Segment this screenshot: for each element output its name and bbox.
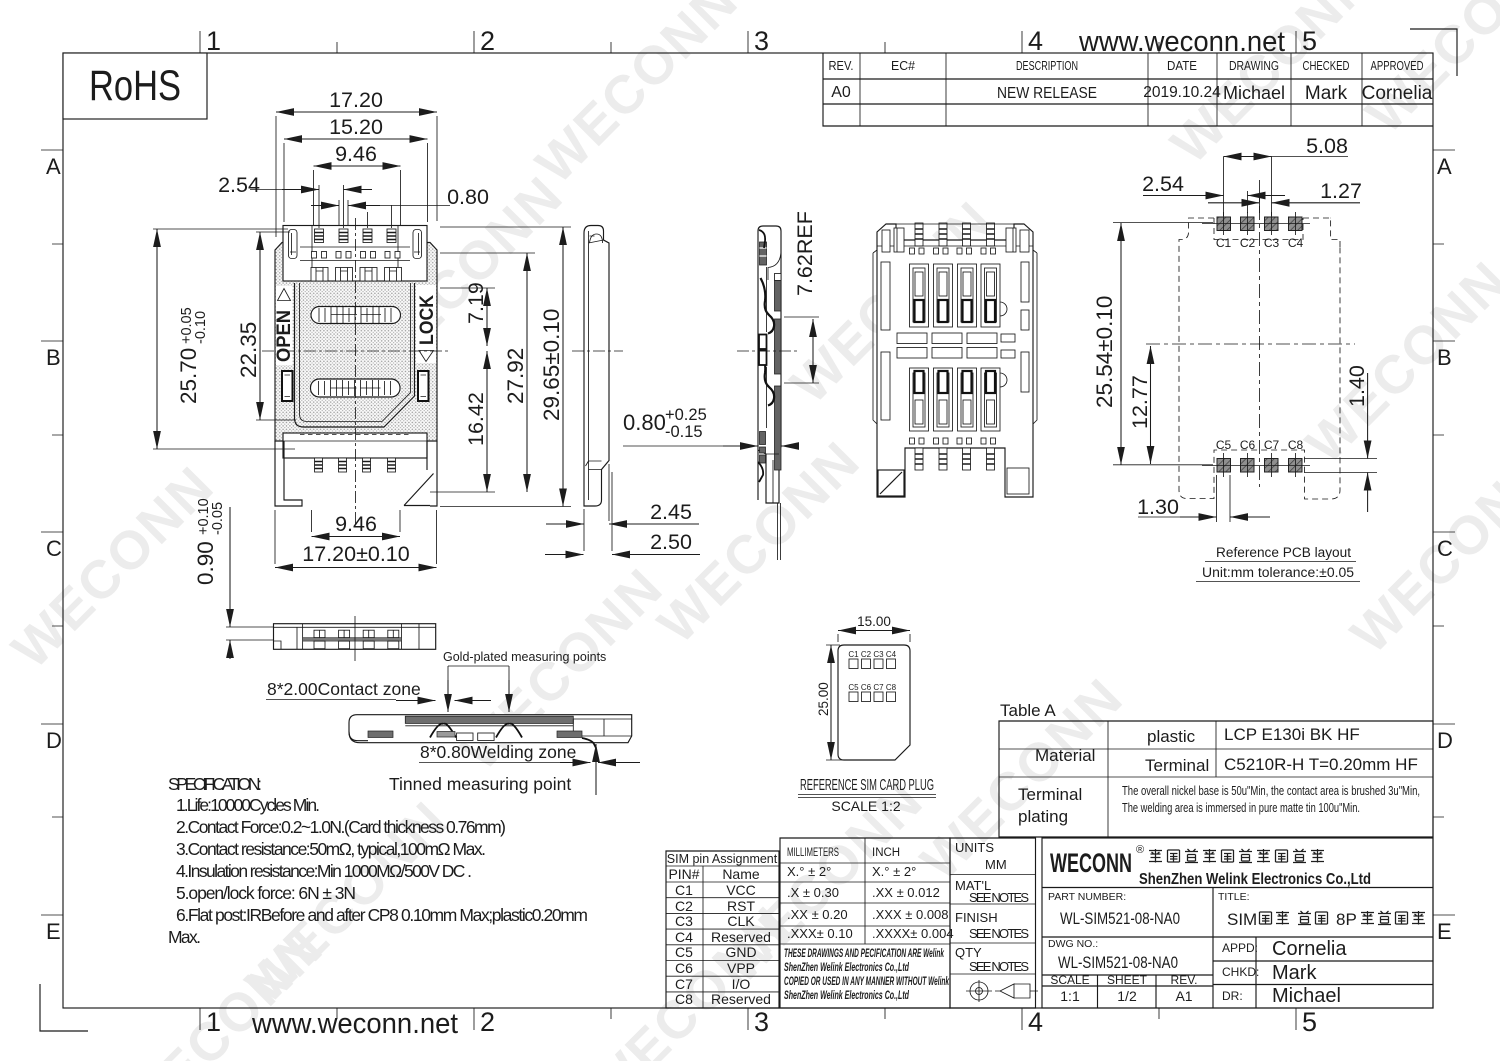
svg-text:C2: C2 — [675, 898, 693, 914]
svg-text:Mark: Mark — [1305, 83, 1348, 104]
svg-text:C6: C6 — [861, 683, 872, 692]
svg-text:C2: C2 — [1240, 236, 1256, 250]
svg-text:C5: C5 — [675, 944, 693, 960]
svg-text:Terminal: Terminal — [1145, 756, 1209, 775]
svg-text:WL-SIM521-08-NA0: WL-SIM521-08-NA0 — [1060, 910, 1180, 928]
svg-text:2: 2 — [480, 26, 495, 56]
svg-text:DR:: DR: — [1222, 989, 1243, 1003]
svg-text:1: 1 — [206, 1007, 221, 1037]
svg-text:The welding area is immersed i: The welding area is immersed in pure mat… — [1122, 801, 1360, 815]
svg-text:VCC: VCC — [726, 882, 756, 898]
svg-text:SEE NOTES: SEE NOTES — [969, 890, 1029, 905]
svg-text:C1: C1 — [848, 650, 859, 659]
svg-text:5.08: 5.08 — [1306, 134, 1348, 158]
svg-text:C6: C6 — [675, 960, 693, 976]
svg-text:SHEET: SHEET — [1107, 973, 1148, 987]
svg-text:2.50: 2.50 — [650, 530, 692, 554]
svg-text:C: C — [1437, 536, 1453, 561]
svg-text:WECONN: WECONN — [1050, 848, 1132, 878]
svg-text:C3: C3 — [873, 650, 884, 659]
svg-text:LOCK: LOCK — [417, 295, 438, 345]
svg-text:EC#: EC# — [891, 59, 915, 73]
svg-text:1.Life:10000Cycles Min.: 1.Life:10000Cycles Min. — [176, 795, 320, 815]
svg-text:5: 5 — [1302, 1007, 1317, 1037]
svg-text:DRAWING: DRAWING — [1229, 59, 1279, 73]
svg-text:SEE NOTES: SEE NOTES — [969, 926, 1029, 941]
svg-text:3: 3 — [754, 26, 769, 56]
svg-text:D: D — [1437, 728, 1453, 753]
svg-text:Max.: Max. — [168, 927, 201, 947]
svg-text:.X ± 0.30: .X ± 0.30 — [787, 885, 839, 900]
svg-text:INCH: INCH — [872, 847, 900, 859]
svg-text:www.weconn.net: www.weconn.net — [1078, 26, 1285, 58]
svg-text:.XX ± 0.012: .XX ± 0.012 — [872, 885, 940, 900]
svg-text:OPEN: OPEN — [274, 310, 295, 362]
svg-text:22.35: 22.35 — [236, 322, 261, 378]
svg-text:DESCRIPTION: DESCRIPTION — [1016, 59, 1078, 73]
svg-text:CLK: CLK — [727, 913, 755, 929]
svg-text:9.46: 9.46 — [335, 142, 377, 166]
svg-text:6.Flat post:IRBefore and after: 6.Flat post:IRBefore and after CP8 0.10m… — [176, 905, 588, 925]
svg-text:2.Contact Force:0.2~1.0N.(Card: 2.Contact Force:0.2~1.0N.(Card thickness… — [176, 817, 506, 837]
svg-text:REFERENCE SIM CARD PLUG: REFERENCE SIM CARD PLUG — [800, 777, 934, 794]
svg-text:PIN#: PIN# — [668, 866, 699, 882]
svg-text:C5: C5 — [1216, 438, 1232, 452]
svg-text:A: A — [46, 154, 61, 179]
svg-text:NEW RELEASE: NEW RELEASE — [997, 85, 1097, 102]
svg-text:SIM: SIM — [1227, 910, 1257, 929]
svg-text:CHECKED: CHECKED — [1303, 59, 1350, 73]
svg-text:Reserved: Reserved — [711, 991, 771, 1007]
svg-text:E: E — [1437, 919, 1452, 944]
svg-text:WECONN: WECONN — [525, 0, 750, 195]
svg-text:7.62REF: 7.62REF — [793, 211, 817, 296]
svg-text:25.54±0.10: 25.54±0.10 — [1092, 296, 1117, 408]
svg-text:-0.05: -0.05 — [210, 502, 226, 535]
svg-text:QTY: QTY — [955, 945, 982, 960]
svg-text:ShenZhen Welink Electronics Co: ShenZhen Welink Electronics Co.,Ltd — [784, 962, 910, 974]
svg-text:C8: C8 — [675, 991, 693, 1007]
svg-text:17.20: 17.20 — [329, 88, 383, 112]
svg-text:3: 3 — [754, 1007, 769, 1037]
svg-text:15.20: 15.20 — [329, 115, 383, 139]
svg-text:C7: C7 — [675, 976, 693, 992]
svg-text:COPIED OR USED IN ANY MANNER W: COPIED OR USED IN ANY MANNER WITHOUT Wel… — [784, 976, 949, 988]
svg-text:LCP E130i BK HF: LCP E130i BK HF — [1224, 725, 1360, 744]
svg-text:www.weconn.net: www.weconn.net — [251, 1008, 458, 1040]
svg-text:UNITS: UNITS — [955, 840, 994, 855]
svg-text:17.20±0.10: 17.20±0.10 — [302, 542, 409, 566]
svg-text:4: 4 — [1028, 26, 1043, 56]
svg-text:8*2.00Contact zone: 8*2.00Contact zone — [267, 679, 421, 699]
svg-text:2019.10.24: 2019.10.24 — [1143, 84, 1221, 101]
svg-text:RoHS: RoHS — [89, 62, 181, 110]
svg-text:X.° ± 2°: X.° ± 2° — [787, 864, 831, 879]
svg-text:9.46: 9.46 — [335, 512, 377, 536]
svg-text:GND: GND — [725, 944, 756, 960]
svg-text:SEE NOTES: SEE NOTES — [969, 959, 1029, 974]
svg-text:2: 2 — [480, 1007, 495, 1037]
svg-text:A: A — [1437, 154, 1452, 179]
svg-text:C2: C2 — [861, 650, 872, 659]
svg-text:C6: C6 — [1240, 438, 1256, 452]
svg-text:Table A: Table A — [1000, 701, 1056, 720]
svg-text:SCALE: SCALE — [1050, 973, 1089, 987]
svg-text:ShenZhen Welink Electronics Co: ShenZhen Welink Electronics Co.,Ltd — [1139, 871, 1371, 888]
svg-text:Mark: Mark — [1272, 962, 1317, 984]
svg-text:8*0.80Welding zone: 8*0.80Welding zone — [420, 742, 576, 762]
svg-text:15.00: 15.00 — [857, 614, 891, 629]
svg-text:X.° ± 2°: X.° ± 2° — [872, 864, 916, 879]
svg-text:0.90: 0.90 — [193, 541, 218, 585]
svg-text:1/2: 1/2 — [1117, 988, 1137, 1004]
svg-text:C4: C4 — [1288, 236, 1304, 250]
svg-text:3.Contact resistance:50mΩ, typ: 3.Contact resistance:50mΩ, typical,100mΩ… — [176, 839, 486, 859]
svg-text:12.77: 12.77 — [1128, 375, 1152, 429]
svg-text:The overall nickel base is 50u: The overall nickel base is 50u"Min, the … — [1122, 784, 1420, 798]
svg-text:.XXX± 0.10: .XXX± 0.10 — [787, 926, 853, 941]
svg-text:5: 5 — [1302, 26, 1317, 56]
svg-text:FINISH: FINISH — [955, 910, 998, 925]
svg-text:4: 4 — [1028, 1007, 1043, 1037]
svg-text:C1: C1 — [1216, 236, 1232, 250]
svg-text:C5210R-H T=0.20mm HF: C5210R-H T=0.20mm HF — [1224, 755, 1418, 774]
svg-text:C8: C8 — [886, 683, 897, 692]
svg-text:TITLE:: TITLE: — [1218, 891, 1250, 903]
svg-text:REV.: REV. — [1171, 973, 1198, 987]
svg-text:VPP: VPP — [727, 960, 755, 976]
svg-text:1: 1 — [206, 26, 221, 56]
svg-text:DWG NO.:: DWG NO.: — [1048, 938, 1098, 950]
svg-text:PART NUMBER:: PART NUMBER: — [1048, 891, 1126, 903]
svg-text:SIM pin Assignment: SIM pin Assignment — [667, 852, 778, 866]
svg-text:Reference PCB layout: Reference PCB layout — [1216, 545, 1351, 560]
svg-text:C4: C4 — [886, 650, 897, 659]
svg-text:WECONN: WECONN — [1, 455, 226, 680]
svg-text:0.80: 0.80 — [447, 185, 489, 209]
svg-text:Cornelia: Cornelia — [1362, 83, 1433, 104]
svg-text:WECONN: WECONN — [1295, 250, 1500, 475]
svg-text:SCALE 1:2: SCALE 1:2 — [831, 798, 900, 814]
svg-text:®: ® — [1136, 844, 1144, 856]
svg-text:1:1: 1:1 — [1060, 988, 1080, 1004]
svg-text:C1: C1 — [675, 882, 693, 898]
svg-text:C3: C3 — [675, 913, 693, 929]
svg-text:B: B — [1437, 345, 1452, 370]
svg-text:Tinned measuring point: Tinned measuring point — [389, 774, 571, 794]
svg-text:+0.25: +0.25 — [665, 406, 707, 424]
svg-text:B: B — [46, 345, 61, 370]
svg-text:Terminal: Terminal — [1018, 785, 1082, 804]
svg-text:29.65±0.10: 29.65±0.10 — [539, 309, 564, 421]
svg-text:.XXXX± 0.004: .XXXX± 0.004 — [872, 926, 954, 941]
svg-text:RST: RST — [727, 898, 755, 914]
svg-text:16.42: 16.42 — [464, 392, 488, 446]
svg-text:C4: C4 — [675, 929, 693, 945]
svg-text:MM: MM — [985, 857, 1007, 872]
svg-text:4.Insulation resistance:Min 10: 4.Insulation resistance:Min 1000MΩ/500V … — [176, 861, 472, 881]
svg-text:Cornelia: Cornelia — [1272, 938, 1347, 960]
svg-text:D: D — [46, 728, 62, 753]
svg-text:MILLIMETERS: MILLIMETERS — [787, 847, 839, 859]
svg-text:27.92: 27.92 — [503, 348, 528, 404]
svg-text:Reserved: Reserved — [711, 929, 771, 945]
svg-text:8P: 8P — [1336, 910, 1357, 929]
svg-text:C: C — [46, 536, 62, 561]
svg-text:Michael: Michael — [1272, 985, 1341, 1007]
svg-text:plating: plating — [1018, 807, 1068, 826]
svg-text:Unit:mm tolerance:±0.05: Unit:mm tolerance:±0.05 — [1202, 565, 1354, 580]
svg-text:C7: C7 — [1264, 438, 1280, 452]
svg-text:APPD:: APPD: — [1222, 941, 1258, 955]
svg-text:WECONN: WECONN — [1340, 440, 1500, 665]
svg-text:Michael: Michael — [1223, 83, 1285, 103]
svg-text:APPROVED: APPROVED — [1371, 59, 1424, 73]
svg-text:C5: C5 — [848, 683, 859, 692]
svg-text:25.00: 25.00 — [816, 682, 831, 716]
svg-text:25.70: 25.70 — [176, 348, 201, 404]
svg-text:Gold-plated measuring points: Gold-plated measuring points — [443, 650, 606, 664]
svg-text:Name: Name — [722, 866, 760, 882]
svg-text:2.54: 2.54 — [218, 173, 260, 197]
svg-text:1.40: 1.40 — [1345, 365, 1369, 407]
svg-text:plastic: plastic — [1147, 727, 1196, 746]
svg-text:2.45: 2.45 — [650, 500, 692, 524]
svg-text:5.open/lock force: 6N ± 3N: 5.open/lock force: 6N ± 3N — [176, 883, 356, 903]
svg-text:Material: Material — [1035, 746, 1095, 765]
svg-text:I/O: I/O — [732, 976, 751, 992]
svg-text:1.27: 1.27 — [1320, 179, 1362, 203]
svg-text:E: E — [46, 919, 61, 944]
svg-text:2.54: 2.54 — [1142, 172, 1184, 196]
svg-text:CHKD:: CHKD: — [1222, 965, 1259, 979]
svg-text:THESE DRAWINGS AND PECIFICATIO: THESE DRAWINGS AND PECIFICATION ARE Weli… — [784, 948, 944, 960]
svg-text:-0.10: -0.10 — [193, 311, 209, 344]
svg-text:A0: A0 — [831, 84, 851, 101]
svg-text:C8: C8 — [1288, 438, 1304, 452]
svg-text:REV.: REV. — [829, 59, 854, 73]
svg-text:A1: A1 — [1175, 988, 1192, 1004]
svg-text:-0.15: -0.15 — [665, 423, 703, 441]
svg-text:1.30: 1.30 — [1137, 495, 1179, 519]
svg-text:.XXX ± 0.008: .XXX ± 0.008 — [872, 907, 949, 922]
svg-text:0.80: 0.80 — [623, 410, 666, 435]
svg-text:C3: C3 — [1264, 236, 1280, 250]
svg-text:WL-SIM521-08-NA0: WL-SIM521-08-NA0 — [1058, 954, 1178, 972]
svg-text:C7: C7 — [873, 683, 884, 692]
svg-text:SPECIFICATION:: SPECIFICATION: — [168, 774, 262, 794]
svg-text:DATE: DATE — [1167, 59, 1197, 73]
svg-text:.XX ± 0.20: .XX ± 0.20 — [787, 907, 848, 922]
svg-text:ShenZhen Welink Electronics Co: ShenZhen Welink Electronics Co.,Ltd — [784, 990, 910, 1002]
